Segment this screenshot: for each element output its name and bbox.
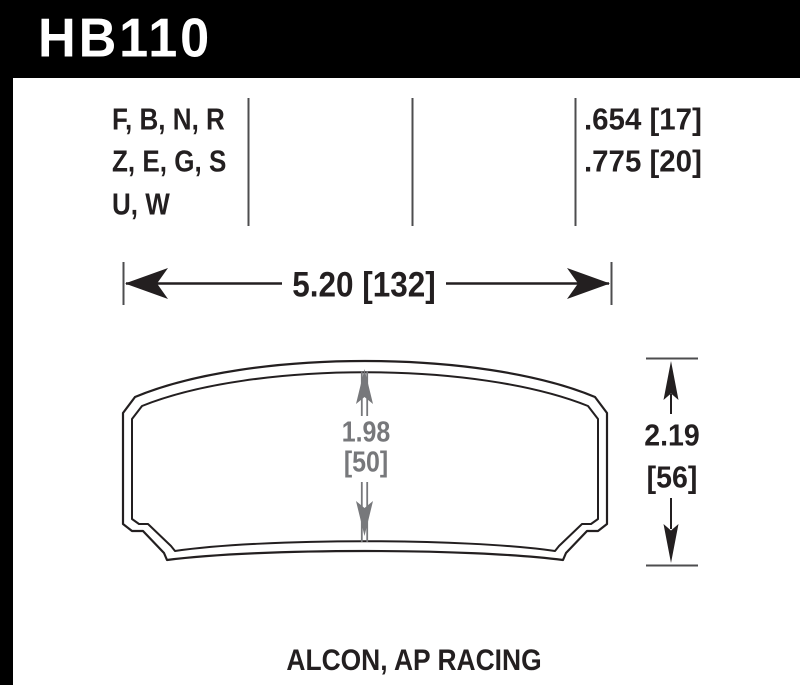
compound-row-3: U, W — [112, 189, 170, 220]
thickness-row-2: .775 [20] — [584, 146, 702, 177]
applications-label: ALCON, AP RACING — [286, 646, 541, 676]
brake-pad-spec-sheet: HB110 F, B, N, R Z, E, G, S U, W .654 [1… — [0, 0, 800, 691]
arrow-down-icon — [664, 524, 679, 563]
thickness-row-1: .654 [17] — [584, 104, 702, 135]
compound-row-1: F, B, N, R — [112, 104, 225, 135]
pad-height-inches-label: 1.98 — [342, 419, 391, 448]
overall-width-label: 5.20 [132] — [292, 268, 436, 303]
pad-height-mm-label: [50] — [344, 449, 388, 478]
compound-row-2: Z, E, G, S — [112, 146, 226, 177]
overall-height-mm-label: [56] — [647, 462, 698, 493]
part-number: HB110 — [38, 11, 212, 66]
overall-height-inches-label: 2.19 — [644, 420, 700, 451]
